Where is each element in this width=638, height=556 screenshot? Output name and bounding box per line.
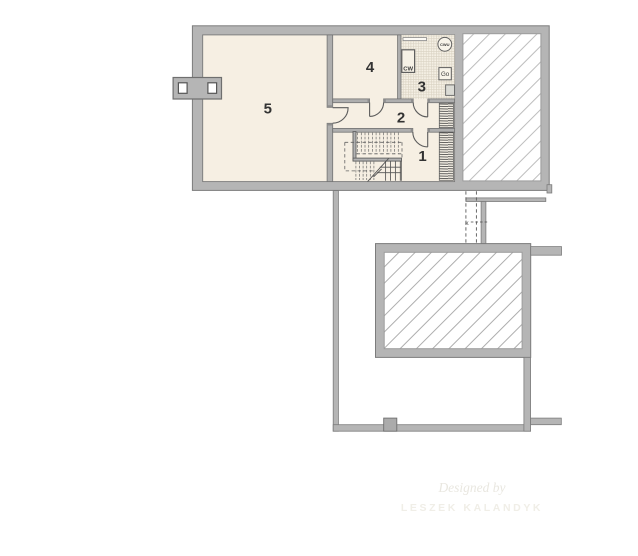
svg-text:1: 1 xyxy=(418,148,426,165)
svg-text:CWU: CWU xyxy=(440,42,450,47)
svg-text:CW: CW xyxy=(403,67,413,73)
svg-text:4: 4 xyxy=(366,59,375,76)
svg-text:k: k xyxy=(465,220,469,227)
svg-text:Designed by: Designed by xyxy=(437,480,505,495)
svg-text:LESZEK KALANDYK: LESZEK KALANDYK xyxy=(401,502,543,514)
svg-text:5: 5 xyxy=(264,101,272,118)
svg-text:Go: Go xyxy=(441,71,450,78)
svg-text:3: 3 xyxy=(418,78,426,95)
svg-text:2: 2 xyxy=(397,109,405,126)
